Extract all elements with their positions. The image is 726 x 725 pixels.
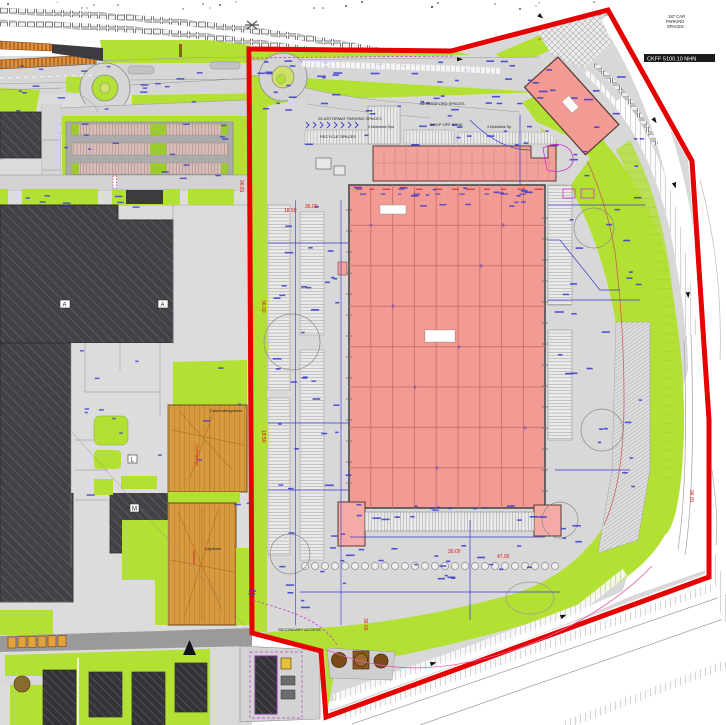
svg-text:25 UDTORMAT PARKING SPACES: 25 UDTORMAT PARKING SPACES — [318, 116, 382, 121]
svg-text:36.00: 36.00 — [305, 204, 318, 210]
svg-text:36.00: 36.00 — [260, 300, 266, 313]
svg-text:CKFF 5100.10 NHN: CKFF 5100.10 NHN — [647, 57, 696, 63]
svg-text:4 Motorbike Spa: 4 Motorbike Spa — [368, 125, 394, 129]
svg-text:Laydown: Laydown — [205, 546, 221, 551]
svg-text:Cust laydown: Cust laydown — [195, 445, 199, 466]
svg-text:36.00: 36.00 — [362, 618, 368, 631]
svg-text:Customerlaydown: Customerlaydown — [210, 408, 242, 413]
svg-text:18.50: 18.50 — [260, 430, 266, 443]
svg-text:47.05: 47.05 — [497, 554, 510, 560]
svg-text:Laydown: Laydown — [192, 550, 196, 564]
svg-text:A: A — [63, 303, 67, 309]
svg-text:SPACES: SPACES — [667, 24, 684, 29]
svg-text:DROP OFF ZONE: DROP OFF ZONE — [430, 122, 463, 127]
svg-text:BEVERSFORD SPACES: BEVERSFORD SPACES — [420, 101, 465, 106]
svg-text:M: M — [132, 507, 137, 513]
svg-text:RECYCLE SPACES: RECYCLE SPACES — [320, 134, 356, 139]
svg-text:4 Motorbike Sp: 4 Motorbike Sp — [487, 125, 511, 129]
svg-text:96.81: 96.81 — [688, 490, 694, 503]
svg-text:SECONDARY ACCESS: SECONDARY ACCESS — [278, 627, 321, 632]
svg-text:30.00: 30.00 — [448, 549, 461, 555]
svg-text:18.50: 18.50 — [284, 208, 297, 214]
svg-text:96.81: 96.81 — [238, 180, 244, 193]
svg-text:A: A — [161, 303, 165, 309]
